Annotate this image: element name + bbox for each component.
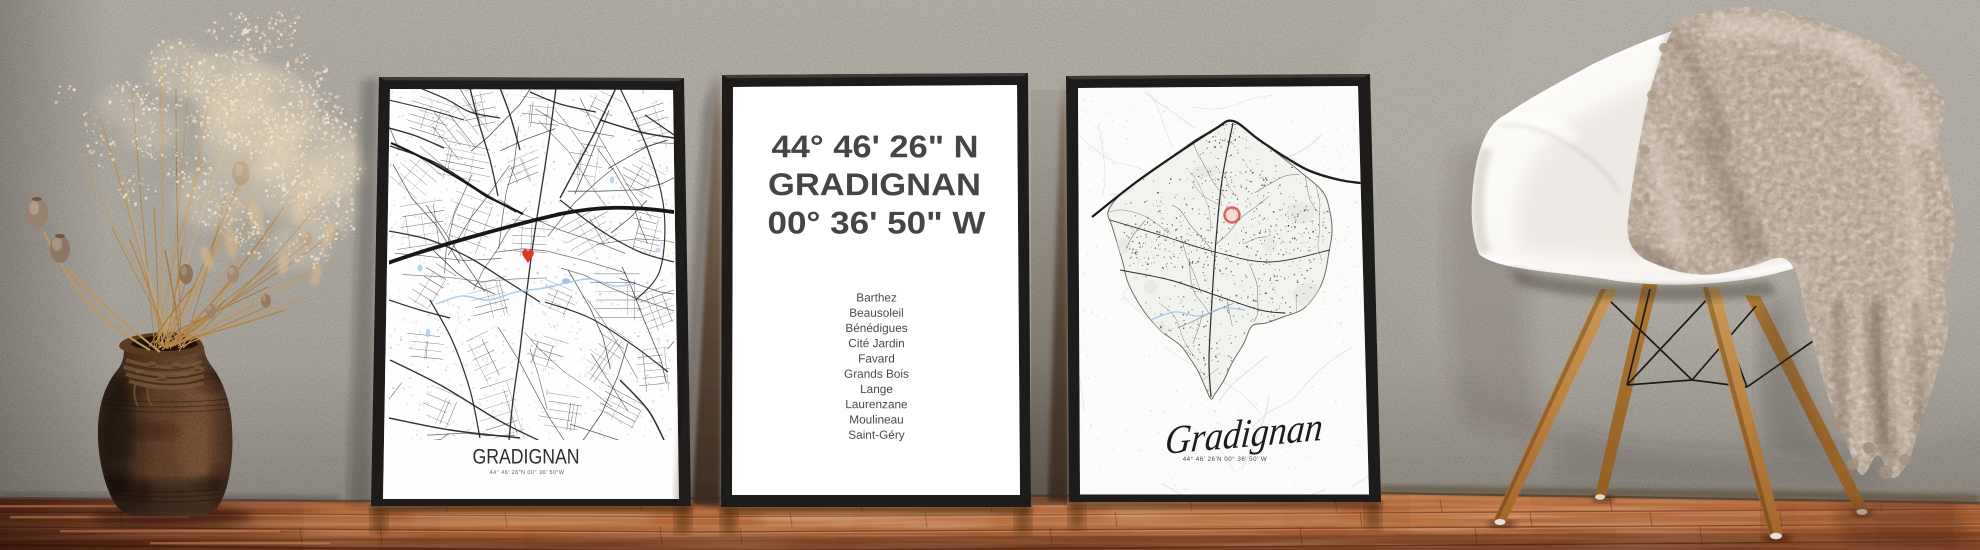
svg-text:Bénédigues: Bénédigues (845, 321, 907, 335)
svg-text:44° 46′ 26′N 00° 36′ 50′ W: 44° 46′ 26′N 00° 36′ 50′ W (1183, 456, 1268, 463)
svg-text:Grands Bois: Grands Bois (844, 367, 909, 381)
svg-text:00° 36' 50" W: 00° 36' 50" W (767, 204, 985, 240)
svg-text:GRADIGNAN: GRADIGNAN (768, 166, 981, 202)
svg-text:Moulineau: Moulineau (849, 412, 903, 426)
svg-text:Laurenzane: Laurenzane (845, 397, 908, 411)
svg-text:Saint-Géry: Saint-Géry (848, 428, 904, 442)
svg-text:Lange: Lange (860, 382, 893, 396)
svg-text:Cité Jardin: Cité Jardin (848, 336, 904, 350)
svg-text:Barthez: Barthez (856, 290, 897, 304)
svg-text:Beausoleil: Beausoleil (849, 306, 903, 320)
svg-text:44° 46' 26" N: 44° 46' 26" N (772, 128, 979, 164)
svg-text:Favard: Favard (858, 351, 895, 365)
svg-text:44° 46′ 26″N 00° 36′ 50″W: 44° 46′ 26″N 00° 36′ 50″W (490, 470, 565, 476)
svg-text:GRADIGNAN: GRADIGNAN (472, 445, 579, 468)
